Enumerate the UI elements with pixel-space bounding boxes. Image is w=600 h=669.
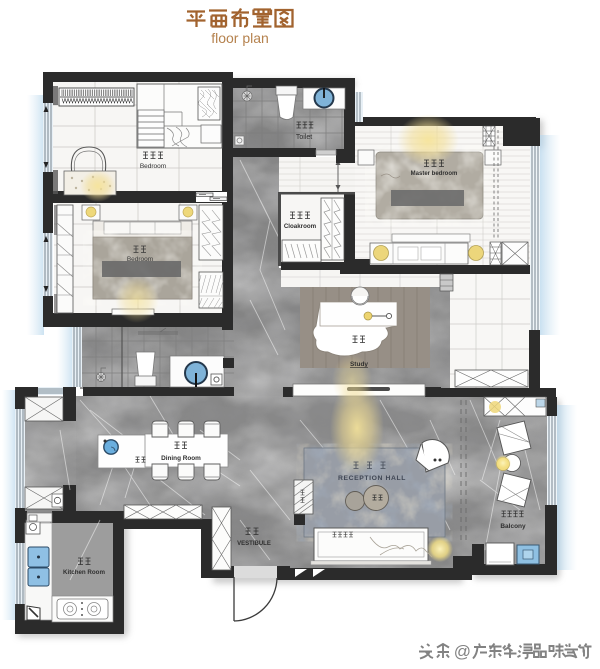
svg-text:VESTIBULE: VESTIBULE <box>237 541 271 547</box>
svg-text:Bedroom: Bedroom <box>127 256 153 263</box>
svg-text:Toilet: Toilet <box>296 134 312 141</box>
svg-text:Balcony: Balcony <box>500 523 526 530</box>
svg-text:Kitchen Room: Kitchen Room <box>63 569 105 576</box>
svg-text:Dining Room: Dining Room <box>161 455 201 462</box>
svg-text:Master bedroom: Master bedroom <box>411 171 458 177</box>
svg-text:Study: Study <box>350 361 368 368</box>
svg-text:floor plan: floor plan <box>211 30 269 46</box>
svg-text:Bedroom: Bedroom <box>140 163 166 170</box>
svg-text:RECEPTION HALL: RECEPTION HALL <box>338 475 406 482</box>
svg-text:Cloakroom: Cloakroom <box>284 223 317 230</box>
svg-text:@: @ <box>454 642 471 661</box>
